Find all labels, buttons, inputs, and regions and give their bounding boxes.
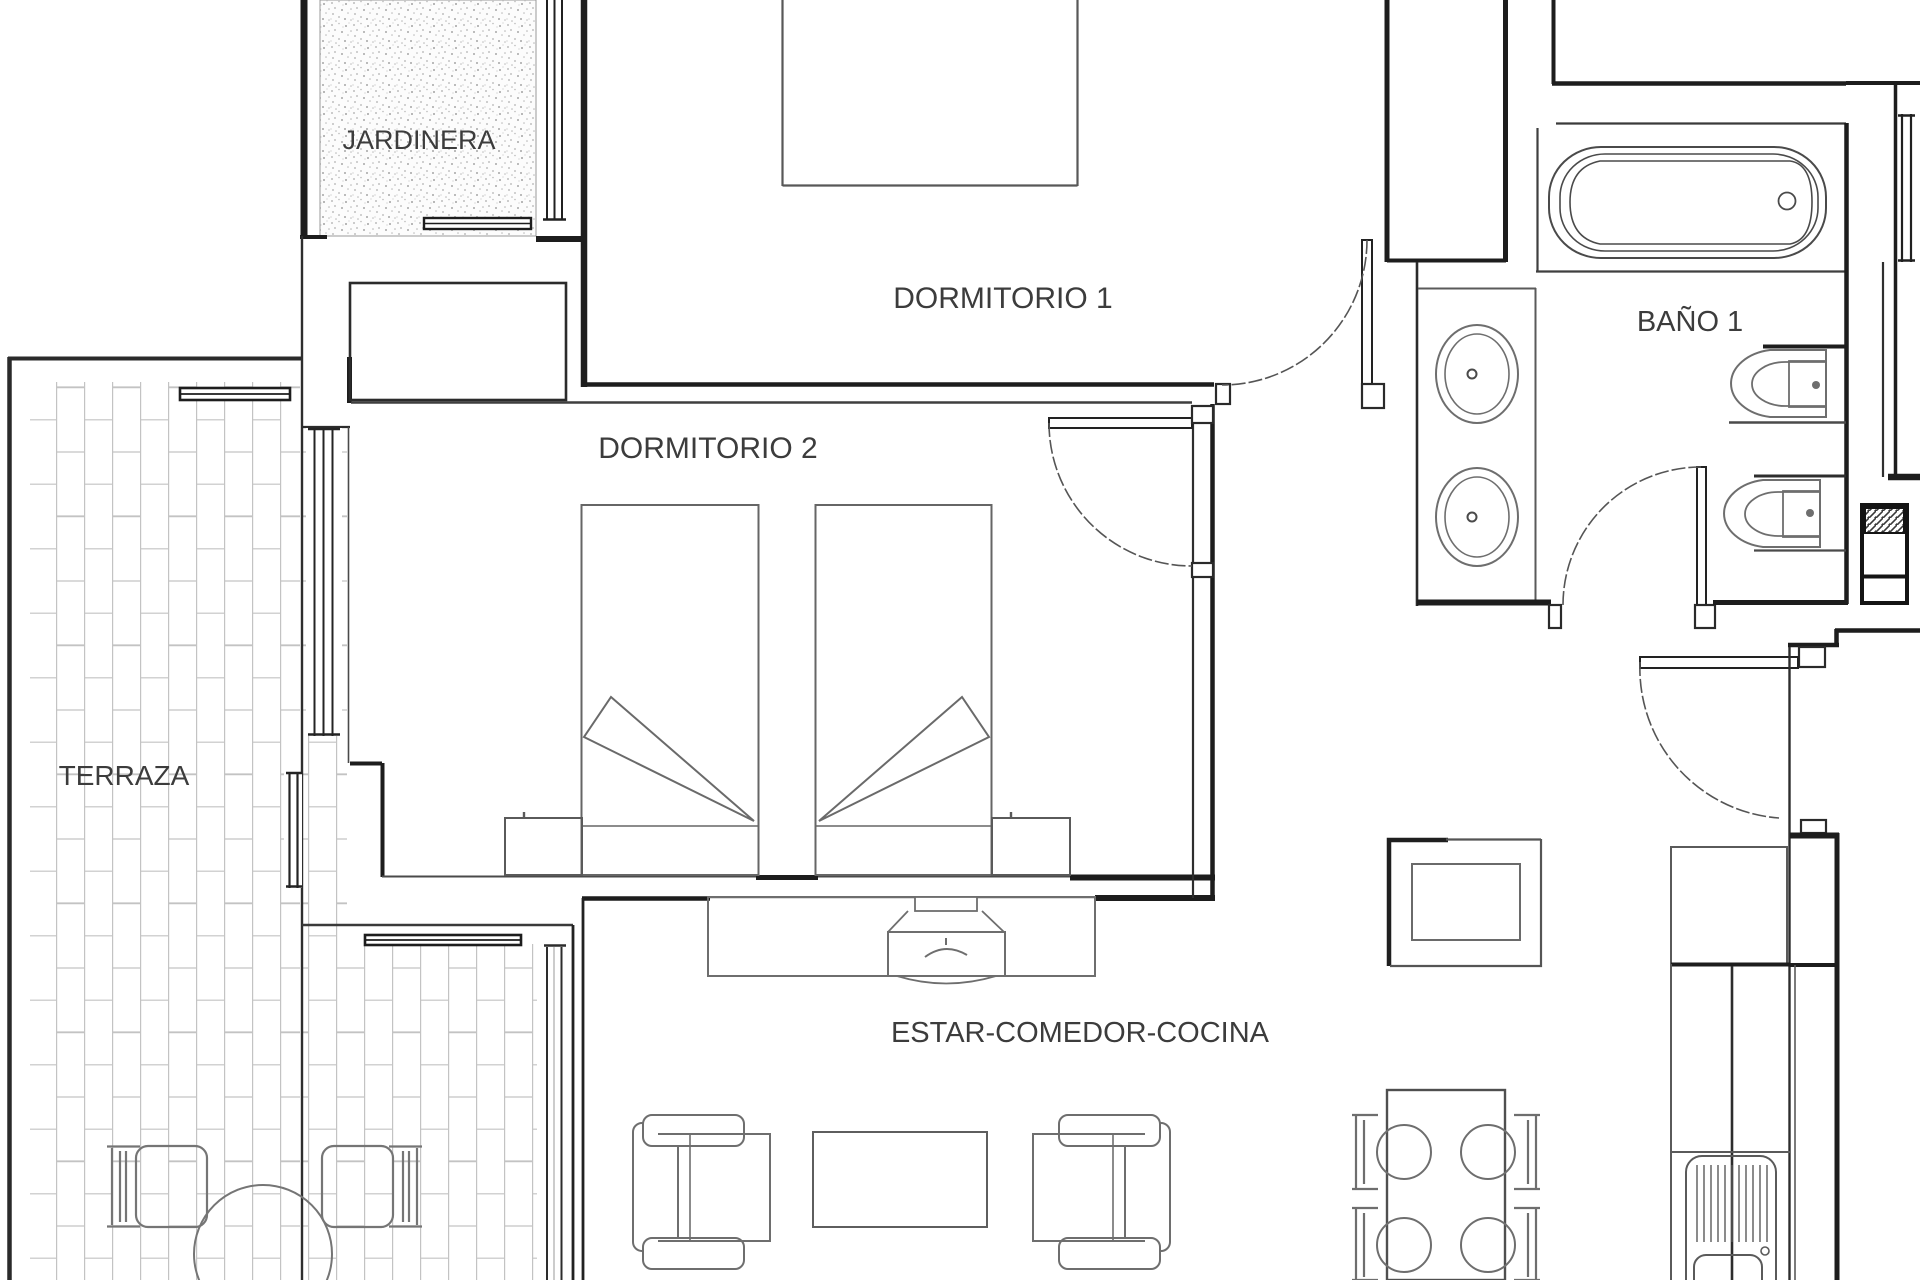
svg-text:DORMITORIO 1: DORMITORIO 1 bbox=[893, 282, 1112, 315]
svg-text:TERRAZA: TERRAZA bbox=[59, 760, 190, 791]
svg-text:BAÑO 1: BAÑO 1 bbox=[1637, 304, 1743, 338]
svg-text:DORMITORIO 2: DORMITORIO 2 bbox=[598, 432, 817, 465]
svg-text:ESTAR-COMEDOR-COCINA: ESTAR-COMEDOR-COCINA bbox=[891, 1017, 1270, 1049]
svg-text:JARDINERA: JARDINERA bbox=[342, 125, 495, 155]
